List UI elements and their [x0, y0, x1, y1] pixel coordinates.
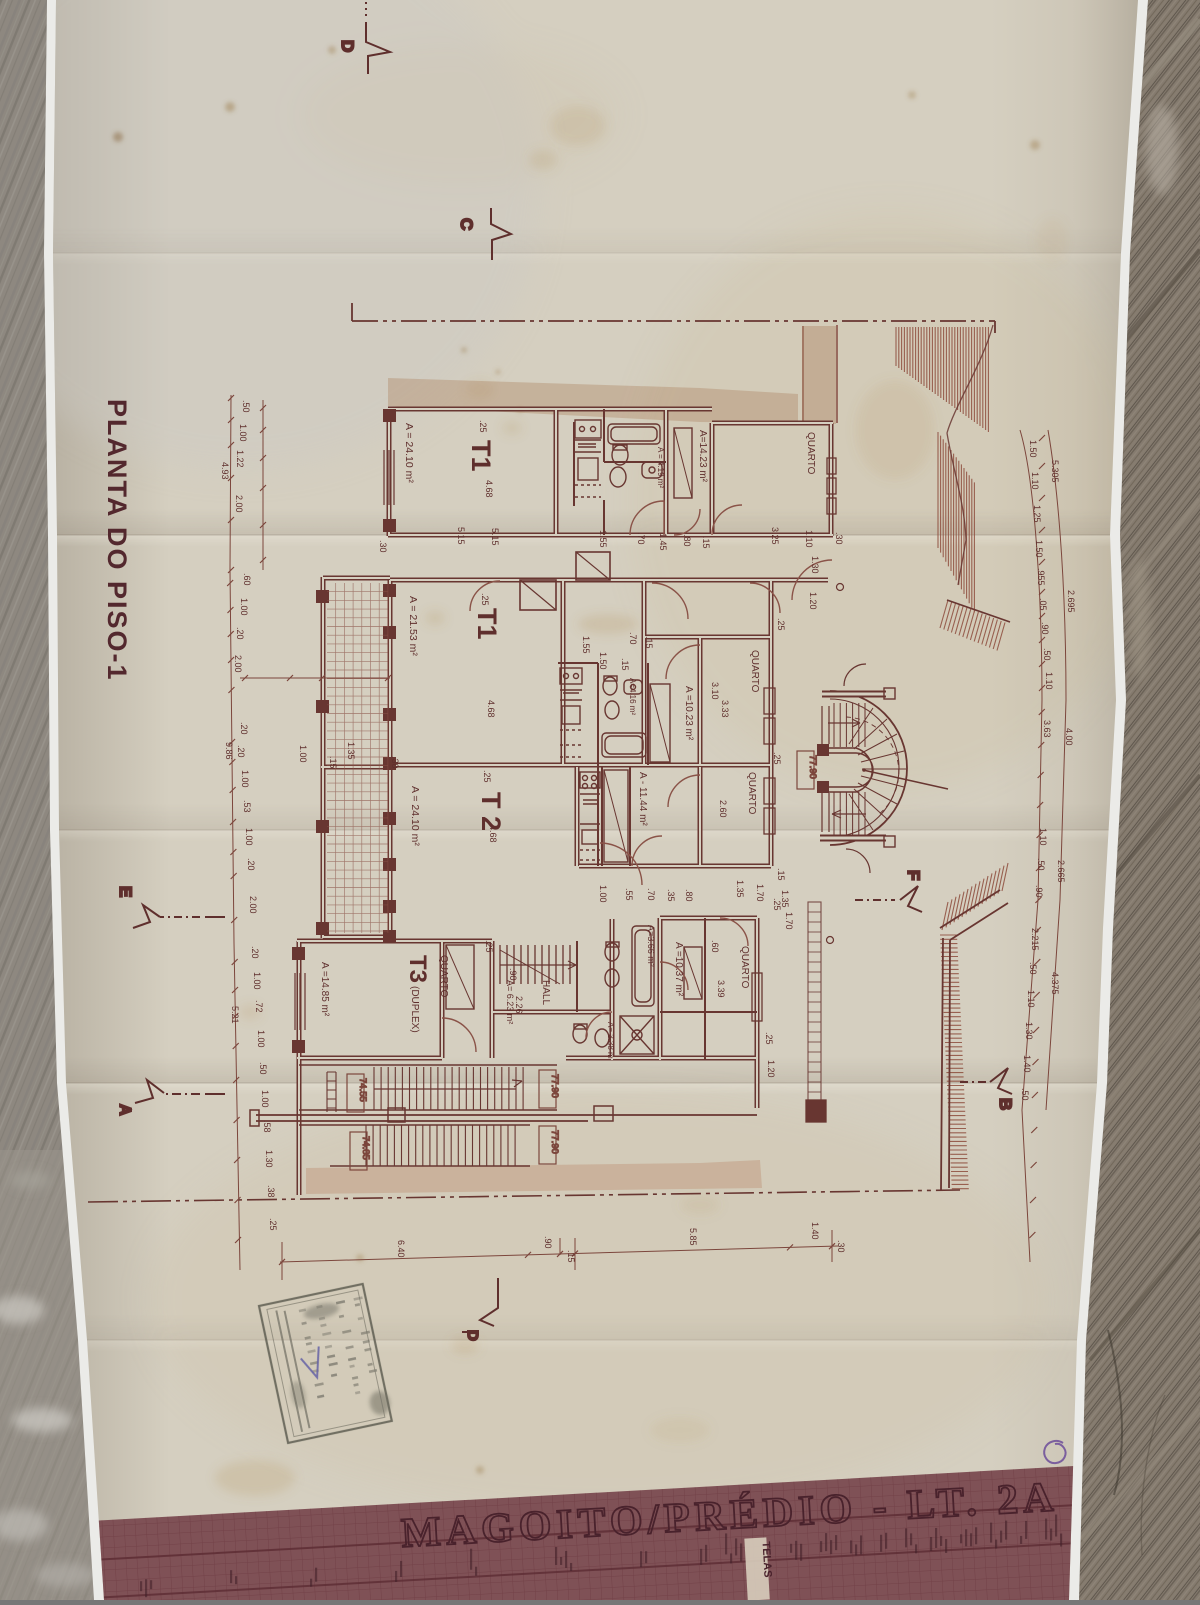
svg-text:.15: .15: [701, 536, 711, 549]
svg-text:A =10.23 m²: A =10.23 m²: [683, 686, 694, 741]
svg-text:.15: .15: [776, 868, 786, 881]
svg-text:.25: .25: [484, 940, 494, 953]
svg-text:1.10: 1.10: [1026, 990, 1036, 1008]
svg-text:1.35: 1.35: [346, 742, 356, 760]
svg-text:A = 21.53 m²: A = 21.53 m²: [407, 596, 419, 656]
svg-text:.25: .25: [772, 752, 782, 765]
svg-text:3.39: 3.39: [716, 980, 726, 998]
svg-text:1.20: 1.20: [766, 1060, 776, 1078]
svg-text:5.15: 5.15: [490, 528, 500, 546]
svg-text:1.00: 1.00: [252, 972, 262, 990]
svg-text:QUARTO: QUARTO: [438, 955, 449, 998]
svg-text:1.25: 1.25: [1032, 505, 1042, 523]
svg-text:B: B: [996, 1098, 1015, 1110]
svg-text:PLANTA DO PISO-1: PLANTA DO PISO-1: [102, 399, 132, 682]
svg-text:.90: .90: [543, 1236, 553, 1249]
svg-text:2.665: 2.665: [1056, 860, 1066, 883]
svg-text:2.215: 2.215: [1030, 928, 1040, 951]
svg-text:1.55: 1.55: [581, 636, 591, 654]
svg-text:.25: .25: [482, 770, 492, 783]
svg-text:74.85: 74.85: [360, 1136, 371, 1160]
svg-text:2.00: 2.00: [248, 896, 258, 914]
svg-text:.80: .80: [684, 889, 694, 902]
svg-text:1.40: 1.40: [810, 1222, 820, 1240]
svg-text:TELAS: TELAS: [760, 1541, 774, 1578]
svg-text:.15: .15: [620, 658, 630, 671]
svg-text:1.40: 1.40: [1022, 1055, 1032, 1073]
svg-text:A= 6.23 m²: A= 6.23 m²: [505, 980, 515, 1024]
svg-text:6.40: 6.40: [396, 1240, 406, 1258]
svg-text:.30: .30: [378, 540, 388, 553]
svg-text:.90: .90: [1040, 622, 1050, 635]
svg-text:.70: .70: [646, 888, 656, 901]
svg-text:2.00: 2.00: [233, 655, 243, 673]
svg-text:3.10: 3.10: [710, 682, 720, 700]
svg-text:4.68: 4.68: [486, 700, 496, 718]
svg-text:A=14.23 m²: A=14.23 m²: [697, 430, 708, 483]
svg-text:.90: .90: [508, 968, 518, 981]
svg-text:A: A: [116, 1104, 133, 1116]
svg-text:T 2: T 2: [476, 792, 506, 831]
svg-text:A=4.16 m²: A=4.16 m²: [628, 678, 637, 715]
svg-text:2.695: 2.695: [1066, 590, 1076, 613]
svg-text:1.50: 1.50: [598, 652, 608, 670]
svg-text:A = 24.10 m²: A = 24.10 m²: [403, 423, 415, 483]
svg-text:1.00: 1.00: [256, 1030, 266, 1048]
svg-text:5.21: 5.21: [230, 1006, 240, 1024]
svg-text:1.00: 1.00: [244, 828, 254, 846]
svg-text:1.00: 1.00: [598, 885, 608, 903]
svg-text:1.00: 1.00: [260, 1090, 270, 1108]
svg-text:HALL: HALL: [540, 980, 551, 1005]
svg-text:4.00: 4.00: [1064, 728, 1074, 746]
svg-text:.90: .90: [1034, 885, 1044, 898]
svg-text:D: D: [338, 40, 357, 52]
svg-text:T3: T3: [404, 955, 431, 983]
svg-text:.50: .50: [1020, 1088, 1030, 1101]
svg-text:4.68: 4.68: [484, 480, 494, 498]
svg-text:F: F: [904, 870, 923, 880]
svg-text:74.55: 74.55: [357, 1078, 368, 1102]
svg-text:1.30: 1.30: [1024, 1022, 1034, 1040]
svg-text:.72: .72: [254, 1000, 264, 1013]
svg-text:5.85: 5.85: [688, 1228, 698, 1246]
svg-text:1.22: 1.22: [235, 450, 245, 468]
svg-text:A =10.37 m²: A =10.37 m²: [673, 942, 684, 997]
svg-text:.955: .955: [1036, 568, 1046, 586]
svg-text:.20: .20: [235, 627, 245, 640]
svg-text:.38: .38: [266, 1185, 276, 1198]
svg-text:.50: .50: [1042, 648, 1052, 661]
svg-text:D: D: [464, 1330, 481, 1341]
svg-text:1.35: 1.35: [780, 890, 790, 908]
svg-text:1.00: 1.00: [239, 598, 249, 616]
svg-text:A = 4.19 m²: A = 4.19 m²: [656, 447, 665, 488]
svg-text:.15: .15: [566, 1250, 576, 1263]
svg-text:3.33: 3.33: [720, 700, 730, 718]
svg-text:1.70: 1.70: [755, 884, 765, 902]
svg-text:1.00: 1.00: [240, 770, 250, 788]
svg-text:1.45: 1.45: [658, 533, 668, 551]
svg-text:A = 24.10 m²: A = 24.10 m²: [409, 786, 421, 846]
svg-text:.25: .25: [480, 593, 490, 606]
svg-text:.50: .50: [258, 1062, 268, 1075]
svg-text:5.15: 5.15: [456, 527, 466, 545]
svg-text:.15: .15: [328, 756, 338, 769]
svg-text:2.60: 2.60: [718, 800, 728, 818]
svg-text:9.86: 9.86: [224, 742, 234, 760]
svg-text:QUARTO: QUARTO: [746, 772, 757, 815]
svg-text:.60: .60: [242, 573, 252, 586]
svg-text:1.10: 1.10: [1030, 472, 1040, 490]
svg-text:.25: .25: [776, 618, 786, 631]
svg-text:3.63: 3.63: [1042, 720, 1052, 738]
svg-text:A =14.85 m²: A =14.85 m²: [319, 962, 330, 1017]
svg-text:.05: .05: [1038, 598, 1048, 611]
svg-text:QUARTO: QUARTO: [749, 650, 760, 693]
svg-text:T1: T1: [472, 608, 502, 640]
svg-text:4.375: 4.375: [1050, 972, 1060, 995]
svg-text:.50: .50: [1028, 962, 1038, 975]
svg-text:.25: .25: [268, 1218, 278, 1231]
svg-text:.70: .70: [628, 632, 638, 645]
svg-text:5.305: 5.305: [1050, 460, 1060, 483]
svg-text:.80: .80: [682, 534, 692, 547]
svg-text:1.00: 1.00: [238, 424, 248, 442]
svg-text:.35: .35: [666, 889, 676, 902]
svg-text:4.93: 4.93: [220, 462, 230, 480]
svg-text:.50: .50: [1036, 858, 1046, 871]
svg-text:.20: .20: [246, 858, 256, 871]
svg-text:77.90: 77.90: [807, 755, 818, 779]
svg-text:3.25: 3.25: [770, 527, 780, 545]
svg-text:1.30: 1.30: [810, 556, 820, 574]
svg-text:QUARTO: QUARTO: [739, 946, 750, 989]
svg-text:1.10: 1.10: [804, 530, 814, 548]
svg-text:A=3.66 m²: A=3.66 m²: [646, 925, 656, 967]
svg-text:1.55: 1.55: [598, 530, 608, 548]
svg-text:C: C: [457, 218, 476, 230]
svg-text:2.00: 2.00: [234, 495, 244, 513]
svg-text:77.90: 77.90: [549, 1074, 560, 1098]
svg-text:.53: .53: [242, 800, 252, 813]
svg-text:.20: .20: [236, 745, 246, 758]
svg-text:A - 11.44 m²: A - 11.44 m²: [637, 772, 648, 826]
svg-text:.20: .20: [239, 722, 249, 735]
svg-text:1.10: 1.10: [1044, 672, 1054, 690]
svg-text:.55: .55: [624, 888, 634, 901]
svg-text:.20: .20: [250, 946, 260, 959]
svg-text:1.10: 1.10: [1038, 828, 1048, 846]
svg-text:.50: .50: [241, 400, 251, 413]
svg-text:A= 3.38 m: A= 3.38 m: [606, 1022, 615, 1059]
svg-text:.15: .15: [644, 636, 654, 649]
svg-text:1.50: 1.50: [1034, 540, 1044, 558]
svg-text:.60: .60: [710, 940, 720, 953]
svg-text:1.35: 1.35: [735, 880, 745, 898]
svg-text:E: E: [116, 886, 135, 897]
svg-text:1.20: 1.20: [808, 592, 818, 610]
svg-text:1.00: 1.00: [298, 745, 308, 763]
svg-text:.30: .30: [836, 1240, 846, 1253]
svg-text:(DUPLEX): (DUPLEX): [409, 986, 420, 1033]
svg-text:T1: T1: [466, 440, 496, 472]
svg-text:1.30: 1.30: [264, 1150, 274, 1168]
svg-text:1.70: 1.70: [784, 912, 794, 930]
svg-text:.25: .25: [478, 420, 488, 433]
svg-text:.30: .30: [390, 756, 400, 769]
svg-text:1.50: 1.50: [1028, 440, 1038, 458]
svg-text:.30: .30: [834, 532, 844, 545]
svg-text:77.90: 77.90: [549, 1130, 560, 1154]
svg-text:.58: .58: [262, 1120, 272, 1133]
svg-text:.25: .25: [764, 1032, 774, 1045]
svg-text:.70: .70: [636, 532, 646, 545]
svg-text:QUARTO: QUARTO: [805, 432, 816, 475]
